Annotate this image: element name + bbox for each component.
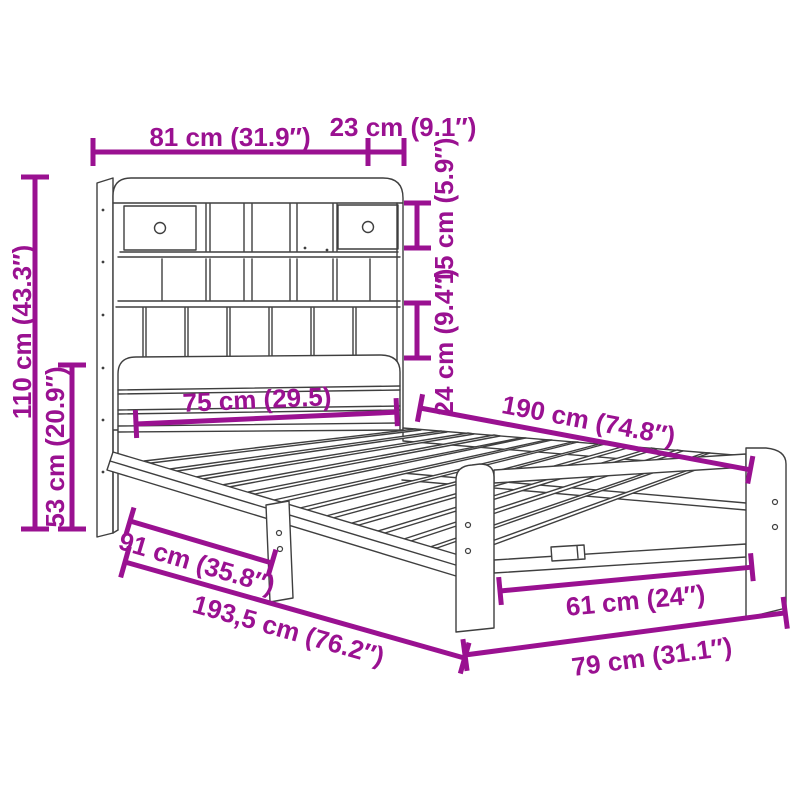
diagram-canvas: 81 cm (31.9″) 23 cm (9.1″) 110 cm (43.3″… [0,0,800,800]
dimension-label: 53 cm (20.9″) [40,366,70,527]
headboard-left-leg-foot [113,530,118,533]
dimension-label: 110 cm (43.3″) [7,245,37,419]
headboard-side-panel [97,178,113,537]
drawer-left [124,206,196,250]
cubby-dot [326,249,329,252]
dimension-cap [417,394,422,422]
screw-hole [773,525,778,530]
center-support-bracket [551,545,585,561]
screw-hole [773,500,778,505]
dimension-upper-shelf-height: 15 cm (5.9″) [404,138,459,285]
drawer-right [338,205,398,249]
dimension-headboard-width: 81 cm (31.9″) [93,122,368,166]
cubby-dot [304,247,307,250]
dimension-label: 23 cm (9.1″) [330,112,477,142]
screw-hole [466,549,471,554]
screw-hole [466,523,471,528]
dimension-cap [135,410,136,438]
dimension-cap [396,398,397,426]
dimension-label: 24 cm (9.4″) [429,269,459,416]
footboard-bottom-rail [494,544,746,573]
screw-hole [277,531,282,536]
bed-dimension-diagram: 81 cm (31.9″) 23 cm (9.1″) 110 cm (43.3″… [0,0,800,800]
drawer-knob [363,222,374,233]
footboard-near-post [456,464,494,632]
dimension-label: 15 cm (5.9″) [429,138,459,285]
dimension-cap [499,577,502,605]
dimension-lower-shelf-height: 24 cm (9.4″) [404,269,459,416]
drawer-knob [155,223,166,234]
screw-hole [278,547,283,552]
dimension-cap [751,553,754,581]
dimension-label: 81 cm (31.9″) [149,122,310,152]
dimension-side-rail-length: 91 cm (35.8″) [115,506,284,600]
dimension-lower-headboard-height: 53 cm (20.9″) [40,365,86,529]
